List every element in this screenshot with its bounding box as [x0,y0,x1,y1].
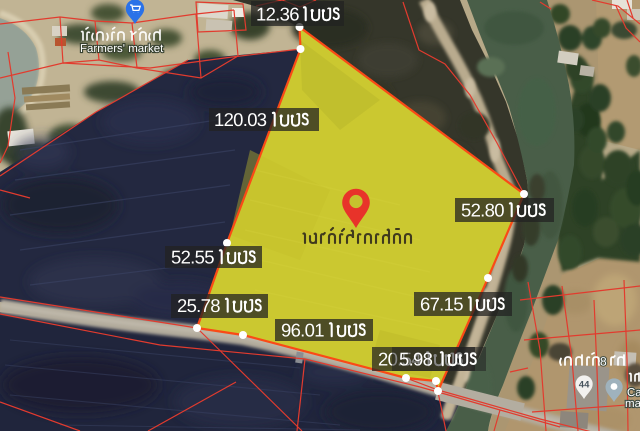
svg-text:8: 8 [600,355,607,369]
svg-text:ma: ma [625,398,640,410]
svg-text:52.80: 52.80 [461,200,504,221]
svg-text:52.55: 52.55 [171,247,214,268]
svg-text:5.98: 5.98 [399,349,433,370]
svg-text:12.36: 12.36 [256,4,299,25]
svg-text:67.15: 67.15 [420,294,463,315]
svg-text:120.03: 120.03 [214,109,267,130]
svg-text:25.78: 25.78 [177,295,220,316]
svg-text:96.01: 96.01 [281,320,324,341]
svg-text:Farmers' market: Farmers' market [80,43,164,55]
svg-text:44: 44 [579,380,590,391]
